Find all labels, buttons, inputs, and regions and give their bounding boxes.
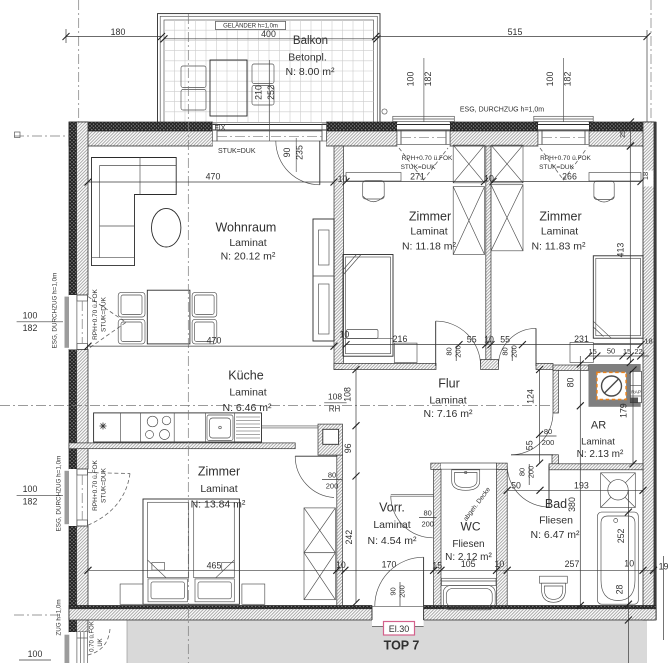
svg-text:90: 90 [282, 148, 292, 158]
svg-text:N: 6.47 m²: N: 6.47 m² [530, 529, 580, 541]
svg-text:RPH+0.70 ü.FOK: RPH+0.70 ü.FOK [92, 288, 99, 339]
svg-text:Küche: Küche [228, 369, 263, 383]
svg-text:100: 100 [23, 311, 38, 321]
svg-text:179: 179 [618, 403, 628, 418]
svg-text:216: 216 [393, 334, 408, 344]
svg-text:10: 10 [340, 330, 350, 340]
svg-text:242: 242 [344, 530, 354, 545]
svg-text:465: 465 [207, 560, 222, 570]
svg-text:N: 2.13 m²: N: 2.13 m² [577, 449, 624, 460]
svg-text:ESG, DURCHZUG h=1,0m: ESG, DURCHZUG h=1,0m [56, 456, 63, 532]
svg-text:10: 10 [484, 334, 494, 344]
svg-text:200: 200 [542, 438, 555, 447]
svg-text:100: 100 [23, 484, 38, 494]
svg-text:10: 10 [495, 559, 505, 569]
svg-text:UK: UK [98, 638, 104, 646]
svg-text:80: 80 [328, 471, 336, 480]
svg-text:Laminat: Laminat [200, 483, 237, 495]
svg-text:124: 124 [525, 389, 535, 404]
svg-text:El.30: El.30 [389, 624, 410, 634]
svg-text:380: 380 [567, 497, 577, 512]
svg-text:182: 182 [23, 497, 38, 507]
svg-text:22: 22 [634, 347, 642, 356]
svg-text:RH: RH [329, 405, 341, 414]
svg-text:170: 170 [382, 560, 397, 570]
svg-text:28: 28 [614, 585, 624, 595]
svg-text:413: 413 [615, 243, 625, 258]
svg-text:108: 108 [328, 392, 342, 402]
svg-text:Zimmer: Zimmer [409, 210, 451, 224]
svg-text:Laminat: Laminat [229, 387, 266, 399]
svg-text:N: 6.46 m²: N: 6.46 m² [222, 402, 272, 414]
svg-text:STUK=DUK: STUK=DUK [401, 164, 437, 171]
svg-text:Laminat: Laminat [373, 519, 410, 531]
svg-text:RPH+0.70 ü.FOK: RPH+0.70 ü.FOK [402, 155, 453, 162]
svg-text:235: 235 [295, 145, 305, 160]
svg-text:80: 80 [544, 427, 552, 436]
svg-text:STUK=DUK: STUK=DUK [101, 296, 108, 332]
svg-text:WC: WC [461, 520, 481, 534]
svg-text:15: 15 [432, 560, 442, 570]
svg-text:231: 231 [574, 334, 589, 344]
svg-text:N: 11.83 m²: N: 11.83 m² [531, 241, 586, 253]
svg-text:515: 515 [508, 27, 523, 37]
svg-text:90: 90 [388, 587, 397, 595]
svg-text:Zimmer: Zimmer [539, 210, 581, 224]
svg-text:Fliesen: Fliesen [539, 515, 573, 527]
svg-text:Wohnraum: Wohnraum [215, 221, 276, 235]
svg-text:80: 80 [424, 509, 432, 518]
svg-text:257: 257 [565, 559, 580, 569]
svg-text:271: 271 [410, 171, 425, 181]
svg-text:80: 80 [445, 347, 454, 355]
svg-text:50: 50 [607, 347, 615, 356]
svg-text:Fliesen: Fliesen [452, 539, 484, 550]
svg-text:200: 200 [510, 345, 519, 358]
svg-text:RPH+0.70 ü.FOK: RPH+0.70 ü.FOK [540, 155, 591, 162]
svg-text:N: 20.12 m²: N: 20.12 m² [221, 251, 276, 263]
svg-text:ESG, DURCHZUG h=1,0m: ESG, DURCHZUG h=1,0m [52, 273, 59, 349]
svg-text:STUK=DUK: STUK=DUK [218, 148, 256, 155]
svg-text:Betonpl.: Betonpl. [288, 52, 327, 64]
svg-text:210: 210 [254, 85, 264, 100]
svg-text:108: 108 [343, 387, 353, 402]
svg-text:ZUG h=1,0m: ZUG h=1,0m [56, 599, 63, 635]
svg-text:182: 182 [423, 72, 433, 87]
svg-text:STUK=DUK: STUK=DUK [539, 164, 575, 171]
svg-text:N: 4.54 m²: N: 4.54 m² [367, 535, 417, 547]
svg-text:15: 15 [589, 347, 597, 356]
svg-text:TOP 7: TOP 7 [384, 639, 420, 653]
svg-text:0.70 ü.FOK: 0.70 ü.FOK [90, 621, 96, 652]
svg-text:470: 470 [206, 172, 221, 182]
svg-text:182: 182 [563, 72, 573, 87]
svg-text:15: 15 [623, 347, 631, 356]
svg-text:100: 100 [28, 649, 43, 659]
svg-text:Laminat: Laminat [229, 237, 266, 249]
svg-text:80: 80 [518, 468, 527, 476]
svg-text:Vorr.: Vorr. [379, 501, 405, 515]
svg-text:Bad: Bad [545, 497, 567, 511]
svg-text:200: 200 [527, 466, 536, 479]
svg-text:FIX: FIX [215, 125, 226, 132]
svg-text:80: 80 [566, 378, 576, 388]
svg-text:Laminat: Laminat [581, 437, 615, 448]
svg-text:AR: AR [591, 420, 606, 432]
svg-text:100: 100 [545, 72, 555, 87]
svg-text:N: 13.84 m²: N: 13.84 m² [191, 499, 246, 511]
svg-text:STUK=DUK: STUK=DUK [101, 467, 108, 503]
svg-text:182: 182 [23, 323, 38, 333]
svg-text:55: 55 [500, 334, 510, 344]
svg-text:100: 100 [406, 72, 416, 87]
svg-text:Balkon: Balkon [293, 35, 328, 47]
svg-text:200: 200 [398, 585, 407, 598]
svg-text:10: 10 [624, 559, 634, 569]
svg-text:252: 252 [616, 528, 626, 543]
svg-text:Flur: Flur [438, 377, 460, 391]
svg-text:10: 10 [338, 174, 348, 184]
svg-text:200: 200 [454, 345, 463, 358]
svg-text:200: 200 [421, 520, 434, 529]
svg-text:18: 18 [641, 172, 650, 180]
svg-text:10: 10 [336, 560, 346, 570]
svg-text:Laminat: Laminat [429, 395, 466, 407]
svg-text:N: 7.16 m²: N: 7.16 m² [423, 408, 473, 420]
svg-text:193: 193 [574, 480, 589, 490]
svg-text:266: 266 [562, 171, 577, 181]
svg-text:N: 8.00 m²: N: 8.00 m² [285, 66, 335, 78]
svg-text:200: 200 [326, 482, 339, 491]
svg-text:RPH+0.70 ü.FOK: RPH+0.70 ü.FOK [92, 459, 99, 510]
svg-text:N: 11.18 m²: N: 11.18 m² [402, 241, 457, 253]
svg-text:400: 400 [261, 29, 276, 39]
svg-text:80: 80 [501, 347, 510, 355]
svg-text:Laminat: Laminat [541, 226, 578, 238]
svg-text:96: 96 [343, 443, 353, 453]
svg-text:Zimmer: Zimmer [198, 465, 240, 479]
svg-text:55: 55 [525, 440, 535, 450]
svg-text:252: 252 [266, 85, 276, 100]
svg-text:Laminat: Laminat [410, 226, 447, 238]
svg-text:50: 50 [511, 480, 521, 490]
svg-text:470: 470 [207, 336, 222, 346]
svg-text:25: 25 [620, 130, 627, 138]
svg-text:N: 2.12 m²: N: 2.12 m² [445, 552, 492, 563]
svg-text:55: 55 [467, 334, 477, 344]
svg-text:ESG, DURCHZUG h=1,0m: ESG, DURCHZUG h=1,0m [460, 107, 544, 114]
svg-text:18: 18 [644, 337, 652, 346]
svg-text:180: 180 [111, 27, 126, 37]
